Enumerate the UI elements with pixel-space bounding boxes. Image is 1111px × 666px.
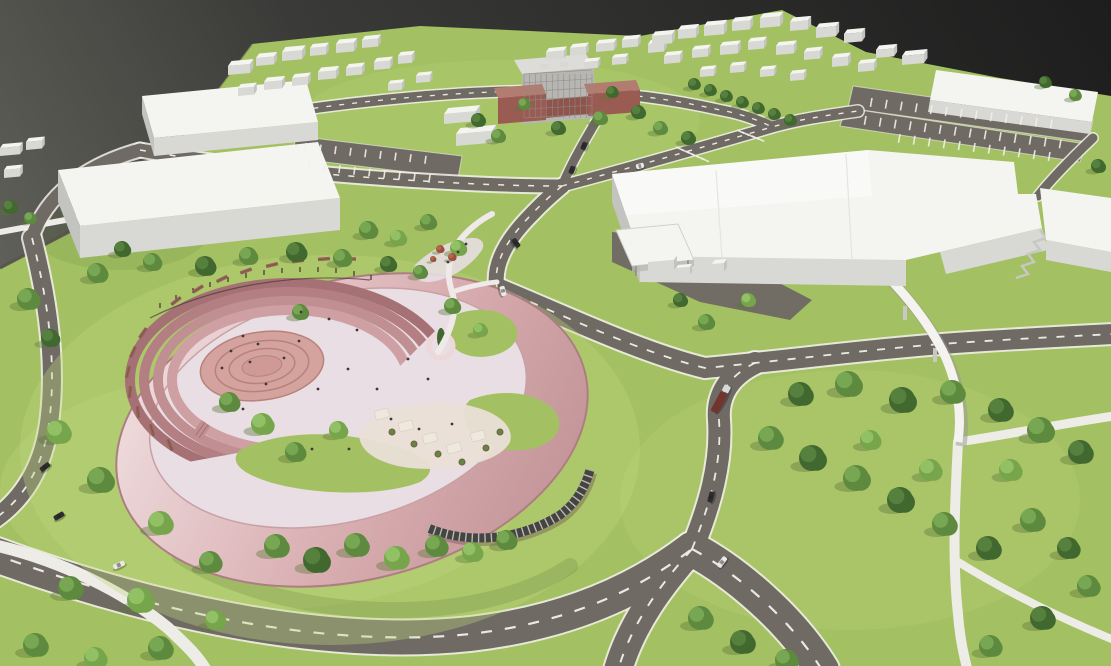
stall-marking: [425, 156, 426, 164]
massing-block: [622, 35, 641, 48]
massing-block: [776, 40, 797, 55]
person: [300, 311, 303, 314]
person: [317, 388, 320, 391]
stall-marking: [320, 145, 321, 153]
person: [390, 418, 393, 421]
stall-marking: [324, 164, 325, 172]
massing-block: [256, 52, 277, 66]
massing-block: [712, 259, 727, 273]
planter: [411, 441, 417, 447]
massing-block: [652, 30, 675, 45]
massing-block: [546, 46, 567, 60]
massing-block: [310, 43, 329, 56]
massing-block: [4, 165, 23, 178]
massing-block: [264, 76, 285, 90]
planter: [459, 459, 465, 465]
stall-marking: [339, 165, 340, 173]
person: [465, 243, 468, 246]
retail-annex-east: [1040, 188, 1111, 272]
stall-marking: [410, 154, 411, 162]
massing-block: [398, 51, 415, 64]
massing-block: [760, 65, 776, 77]
massing-block: [832, 53, 851, 67]
bridge-pier: [903, 306, 907, 320]
massing-block: [748, 37, 767, 50]
massing-block: [732, 16, 753, 31]
render-canvas: [0, 0, 1111, 666]
massing-block: [416, 71, 432, 83]
massing-block: [676, 264, 692, 276]
person: [347, 368, 350, 371]
massing-block: [388, 79, 404, 91]
massing-block: [858, 59, 877, 72]
stall-marking: [429, 175, 430, 183]
person: [348, 448, 351, 451]
stall-marking: [369, 168, 370, 176]
person: [298, 340, 301, 343]
person: [447, 261, 450, 264]
massing-block: [664, 51, 683, 64]
stall-marking: [414, 173, 415, 181]
person: [418, 428, 421, 431]
aerial-masterplan-render: [0, 0, 1111, 666]
person: [257, 343, 260, 346]
stall-marking: [335, 146, 336, 154]
massing-block: [876, 44, 897, 58]
person: [328, 318, 331, 321]
massing-block: [816, 22, 839, 38]
massing-block: [282, 45, 306, 61]
massing-block: [692, 45, 711, 58]
person: [427, 378, 430, 381]
planter: [497, 429, 503, 435]
person: [242, 335, 245, 338]
person: [311, 448, 314, 451]
massing-block: [292, 73, 311, 86]
massing-block: [362, 35, 381, 48]
massing-block: [804, 47, 823, 60]
massing-block: [0, 142, 23, 156]
person: [242, 408, 245, 411]
person: [451, 423, 454, 426]
massing-block: [26, 137, 45, 150]
person: [283, 357, 286, 360]
stall-marking: [395, 153, 396, 161]
massing-block: [648, 256, 677, 272]
planter: [389, 429, 395, 435]
massing-block: [844, 28, 865, 43]
person: [221, 367, 224, 370]
stall-marking: [399, 172, 400, 180]
stall-marking: [305, 143, 306, 151]
stall-marking: [384, 170, 385, 178]
stall-marking: [380, 151, 381, 159]
massing-block: [374, 57, 393, 70]
person: [407, 358, 410, 361]
stall-marking: [365, 149, 366, 157]
massing-block: [902, 49, 928, 65]
massing-block: [790, 69, 806, 81]
massing-block: [760, 12, 783, 28]
massing-block: [584, 57, 600, 69]
massing-block: [704, 20, 727, 36]
massing-block: [228, 59, 254, 75]
massing-block: [570, 43, 589, 56]
massing-block: [612, 53, 628, 65]
massing-block: [336, 38, 357, 53]
massing-block: [346, 63, 365, 76]
massing-block: [700, 65, 716, 77]
massing-block: [596, 38, 617, 52]
planter: [435, 451, 441, 457]
massing-block: [790, 16, 811, 31]
planter: [483, 445, 489, 451]
massing-block: [720, 40, 741, 55]
massing-block: [730, 61, 746, 73]
person: [265, 383, 268, 386]
massing-block: [678, 24, 699, 39]
person: [230, 350, 233, 353]
stall-marking: [350, 148, 351, 156]
person: [356, 329, 359, 332]
stall-marking: [309, 162, 310, 170]
bridge-pier: [933, 348, 937, 362]
person: [457, 251, 460, 254]
person: [249, 361, 252, 364]
stall-marking: [354, 167, 355, 175]
person: [376, 388, 379, 391]
massing-block: [238, 83, 257, 96]
massing-block: [318, 66, 339, 80]
